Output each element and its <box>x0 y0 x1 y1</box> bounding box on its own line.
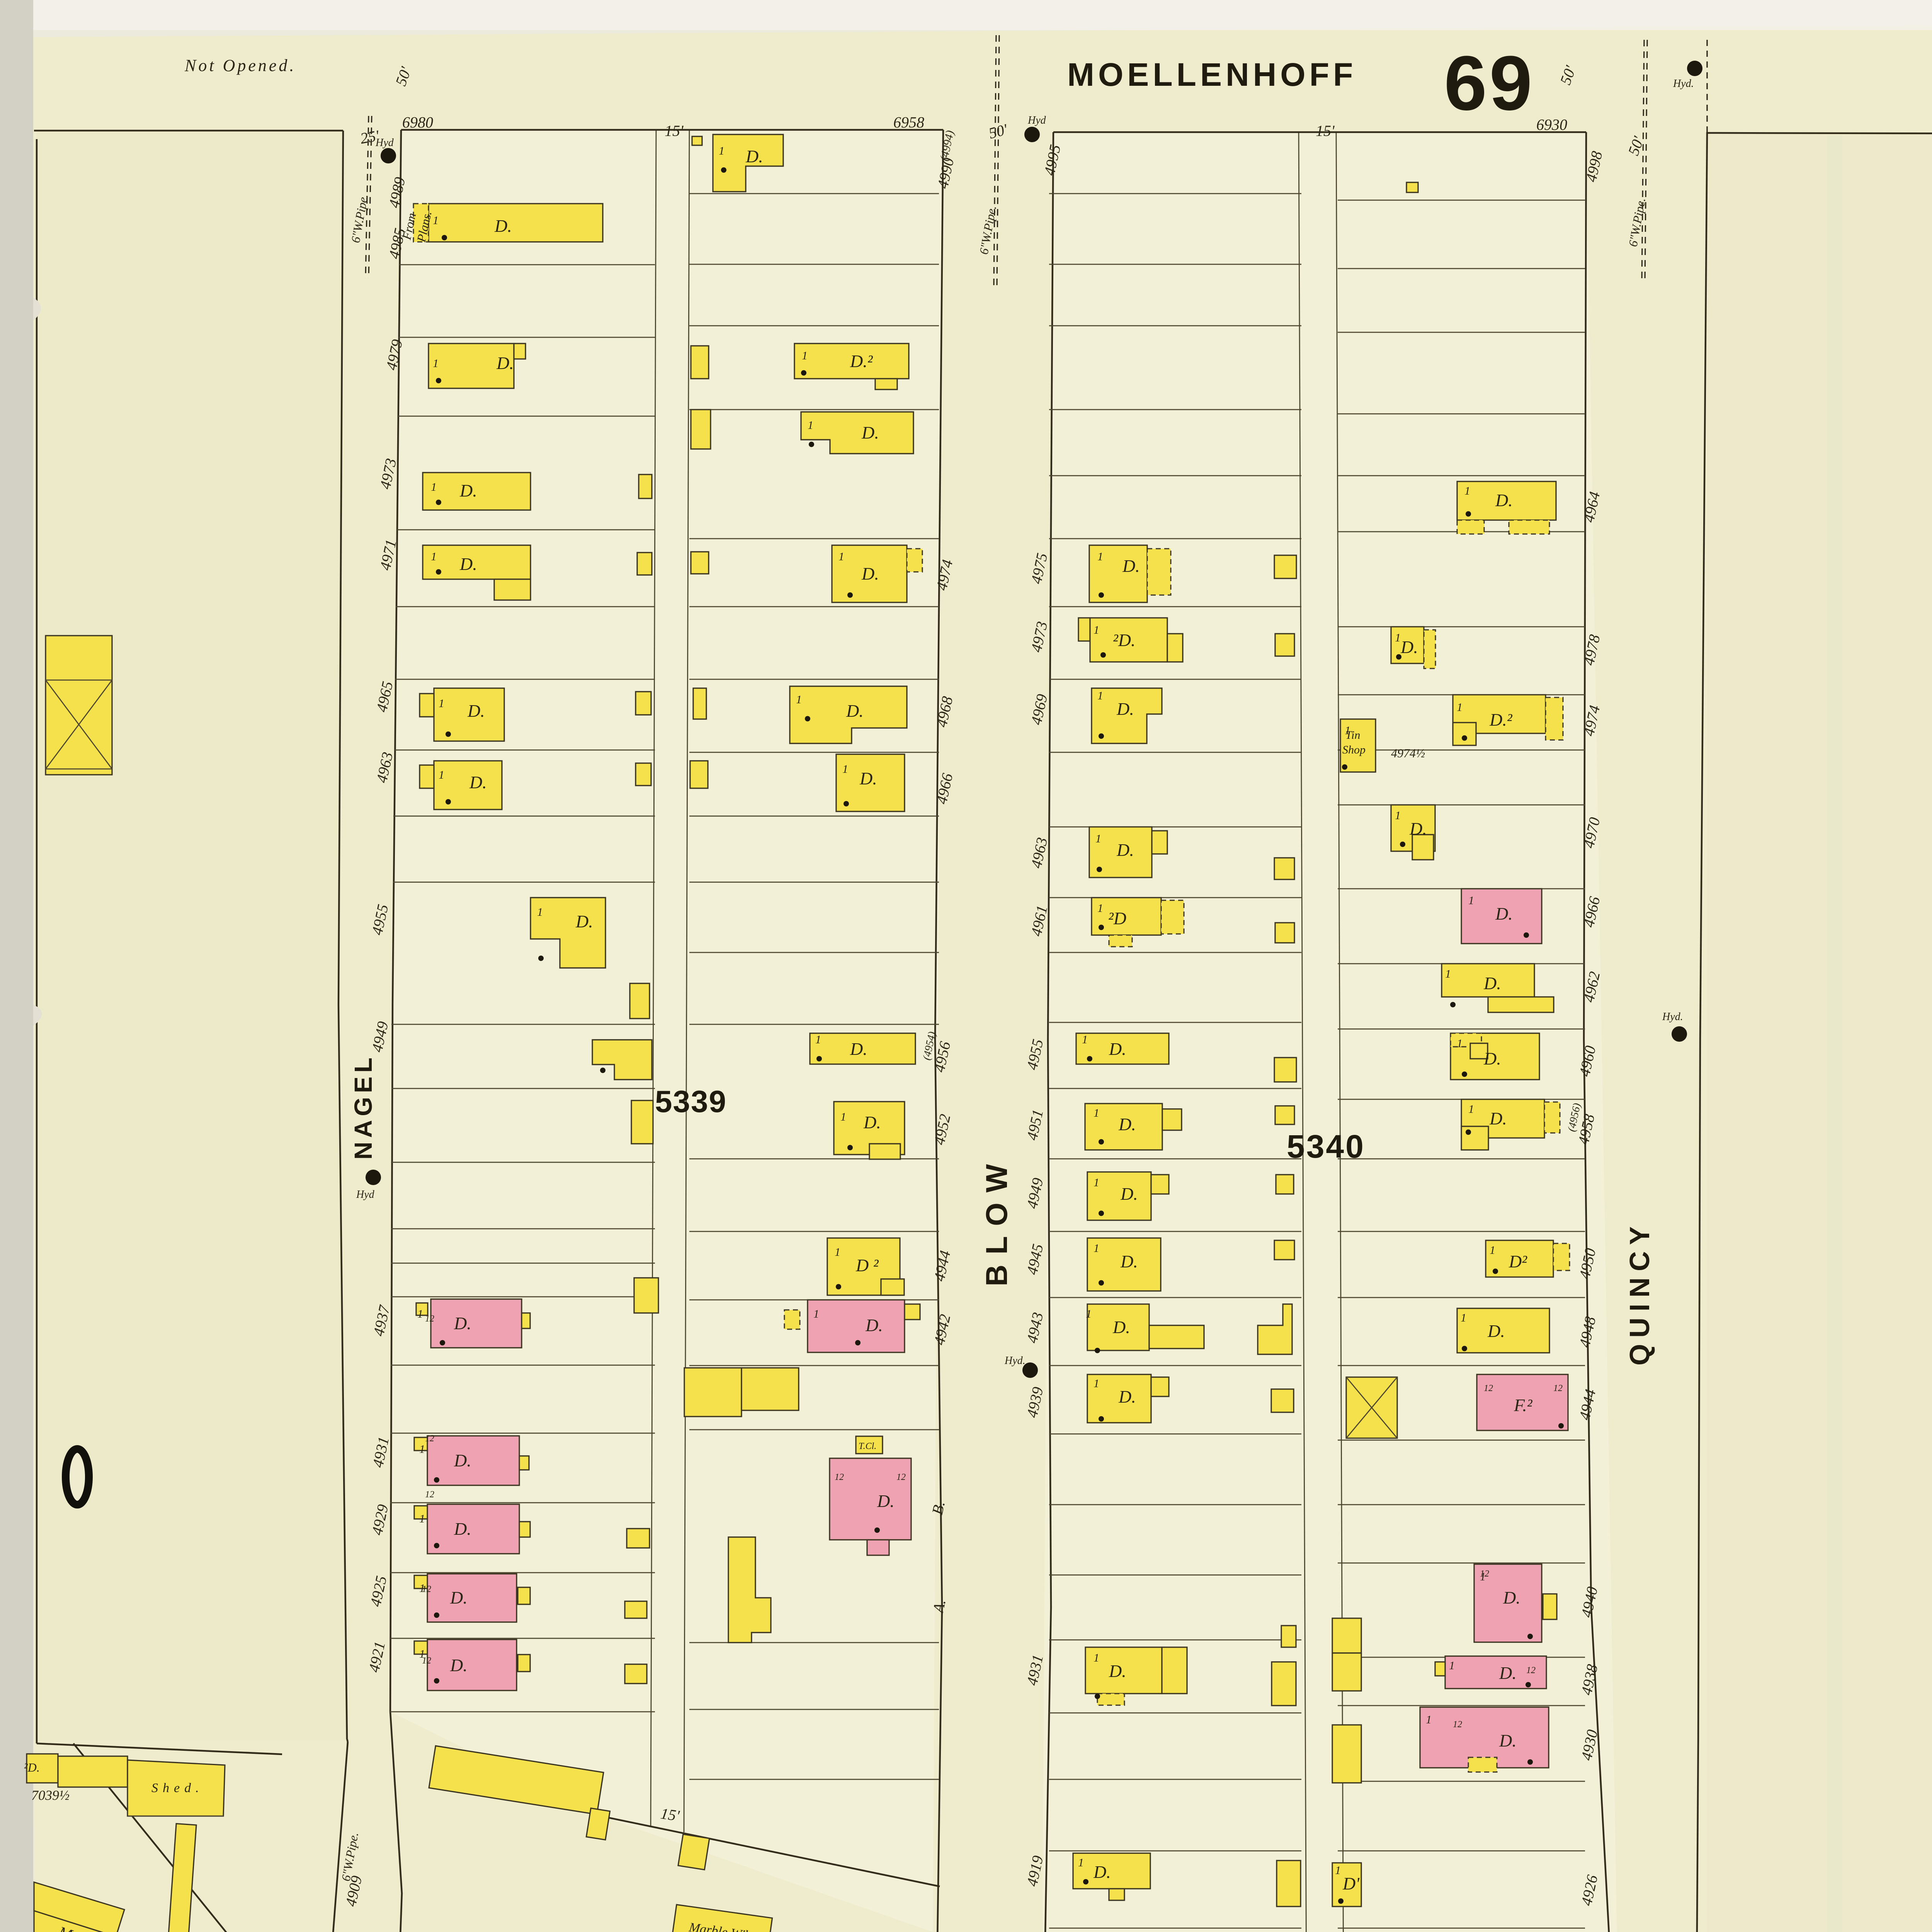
svg-text:1: 1 <box>419 1512 425 1525</box>
svg-text:1: 1 <box>1464 485 1470 497</box>
svg-text:1: 1 <box>537 906 543 918</box>
svg-text:1: 1 <box>1468 894 1474 907</box>
svg-text:D.: D. <box>1116 840 1134 860</box>
svg-text:Hyd: Hyd <box>1027 114 1046 126</box>
svg-text:12: 12 <box>425 1314 434 1324</box>
svg-text:Shop: Shop <box>1342 743 1366 756</box>
svg-text:1: 1 <box>1457 701 1463 714</box>
svg-text:1: 1 <box>1095 832 1101 845</box>
svg-text:1: 1 <box>1449 1659 1455 1672</box>
svg-text:D.: D. <box>494 216 512 236</box>
svg-text:D.: D. <box>1487 1321 1505 1341</box>
svg-text:1: 1 <box>808 419 813 432</box>
svg-text:D.: D. <box>1495 490 1513 510</box>
svg-text:D.: D. <box>469 772 487 792</box>
svg-text:D.: D. <box>1400 637 1418 657</box>
svg-text:D.: D. <box>467 701 485 721</box>
svg-text:6930: 6930 <box>1536 116 1567 133</box>
svg-text:1: 1 <box>419 1582 425 1595</box>
svg-text:69: 69 <box>1444 40 1534 126</box>
svg-text:1: 1 <box>1395 809 1401 822</box>
svg-text:1: 1 <box>1082 1033 1088 1046</box>
svg-text:1: 1 <box>815 1033 821 1046</box>
svg-text:1: 1 <box>1461 1311 1466 1324</box>
svg-text:1: 1 <box>840 1111 846 1123</box>
svg-text:12: 12 <box>1453 1719 1462 1730</box>
svg-text:D': D' <box>1342 1874 1360 1893</box>
svg-text:D.: D. <box>1483 1049 1501 1068</box>
svg-text:1: 1 <box>1086 1308 1092 1320</box>
svg-text:12: 12 <box>1553 1383 1563 1393</box>
svg-text:1: 1 <box>417 1308 423 1320</box>
svg-text:D.: D. <box>850 1039 867 1059</box>
svg-text:12: 12 <box>835 1472 844 1482</box>
svg-text:D.: D. <box>450 1588 468 1607</box>
svg-text:1: 1 <box>802 349 808 362</box>
svg-text:D.: D. <box>454 1451 471 1470</box>
svg-text:1: 1 <box>1094 1651 1099 1664</box>
svg-text:Hyd: Hyd <box>356 1189 375 1201</box>
svg-text:D.: D. <box>1109 1039 1126 1059</box>
svg-text:1: 1 <box>1094 1377 1099 1390</box>
svg-text:D.: D. <box>861 423 879 442</box>
svg-text:Hyd.: Hyd. <box>1673 78 1694 90</box>
svg-text:1: 1 <box>1480 1570 1486 1583</box>
svg-text:D.: D. <box>863 1112 881 1132</box>
svg-text:BLOW: BLOW <box>980 1154 1014 1286</box>
svg-text:D.²: D.² <box>850 351 873 371</box>
svg-text:D.: D. <box>1499 1731 1517 1750</box>
svg-text:5340: 5340 <box>1287 1128 1365 1165</box>
svg-text:D.: D. <box>1409 819 1427 838</box>
svg-text:MOELLENHOFF: MOELLENHOFF <box>1067 56 1357 93</box>
svg-text:D.: D. <box>1495 904 1513 923</box>
svg-text:D.: D. <box>1118 1387 1136 1406</box>
svg-text:D.: D. <box>1109 1661 1126 1681</box>
svg-text:7039½: 7039½ <box>31 1787 70 1803</box>
svg-text:1: 1 <box>813 1308 819 1320</box>
svg-text:1: 1 <box>431 550 437 563</box>
svg-text:1: 1 <box>433 214 439 227</box>
svg-text:²D: ²D <box>1108 908 1126 928</box>
svg-text:1: 1 <box>719 145 724 157</box>
svg-text:1: 1 <box>1097 902 1103 915</box>
svg-text:1: 1 <box>838 550 844 563</box>
svg-text:12: 12 <box>1484 1383 1493 1393</box>
svg-text:1: 1 <box>1094 624 1099 636</box>
svg-text:1: 1 <box>1445 968 1451 980</box>
svg-text:D.: D. <box>1112 1317 1130 1337</box>
svg-text:Shed.: Shed. <box>151 1781 204 1795</box>
svg-text:15': 15' <box>1316 122 1335 139</box>
svg-text:1: 1 <box>1395 631 1401 644</box>
svg-text:1: 1 <box>842 763 848 776</box>
svg-text:1: 1 <box>431 481 437 493</box>
svg-text:4974½: 4974½ <box>1391 746 1425 760</box>
svg-text:²D.: ²D. <box>1113 630 1136 650</box>
svg-text:1: 1 <box>419 1648 425 1660</box>
svg-text:D.: D. <box>745 146 763 166</box>
svg-text:1: 1 <box>1097 550 1103 563</box>
svg-text:D.: D. <box>1120 1184 1138 1204</box>
svg-text:D.: D. <box>1093 1862 1111 1882</box>
svg-text:1: 1 <box>835 1246 840 1259</box>
svg-text:1: 1 <box>1490 1244 1495 1257</box>
svg-text:D.: D. <box>1120 1252 1138 1271</box>
svg-text:1: 1 <box>439 769 444 781</box>
svg-text:12: 12 <box>896 1472 906 1482</box>
svg-text:D.: D. <box>496 353 514 373</box>
svg-text:F.²: F.² <box>1514 1395 1533 1415</box>
svg-text:1: 1 <box>1426 1713 1432 1726</box>
svg-text:D.: D. <box>861 564 879 583</box>
svg-text:D.: D. <box>865 1315 883 1335</box>
svg-text:D.: D. <box>450 1655 468 1675</box>
svg-text:D.: D. <box>1483 973 1501 993</box>
svg-text:D.: D. <box>459 481 477 500</box>
svg-text:Hyd.: Hyd. <box>1662 1011 1683 1023</box>
svg-text:D.: D. <box>1122 556 1140 576</box>
svg-text:D.: D. <box>859 769 877 788</box>
svg-text:1: 1 <box>1078 1856 1084 1869</box>
svg-text:12: 12 <box>425 1434 434 1444</box>
svg-text:1: 1 <box>439 697 444 710</box>
svg-text:1: 1 <box>1335 1864 1341 1877</box>
svg-text:²D.: ²D. <box>24 1760 40 1774</box>
svg-text:D²: D² <box>1509 1252 1527 1271</box>
svg-text:D.: D. <box>1503 1588 1520 1607</box>
svg-text:5339: 5339 <box>655 1084 727 1119</box>
svg-text:1: 1 <box>1345 724 1350 737</box>
svg-text:6958: 6958 <box>893 114 924 131</box>
svg-text:1: 1 <box>1097 689 1103 702</box>
svg-text:1: 1 <box>1457 1037 1463 1050</box>
svg-text:D.: D. <box>1118 1114 1136 1134</box>
svg-text:Hyd: Hyd <box>375 137 394 149</box>
svg-text:1: 1 <box>796 693 802 706</box>
svg-text:12: 12 <box>425 1490 434 1500</box>
svg-text:D.: D. <box>454 1313 471 1333</box>
svg-text:Hyd.: Hyd. <box>1004 1355 1026 1367</box>
svg-text:Not Opened.: Not Opened. <box>184 56 296 75</box>
svg-text:D.: D. <box>459 554 477 574</box>
svg-text:QUINCY: QUINCY <box>1624 1220 1655 1366</box>
svg-text:NAGEL: NAGEL <box>349 1054 377 1160</box>
svg-text:D ²: D ² <box>855 1255 879 1275</box>
svg-text:D.: D. <box>1499 1663 1517 1683</box>
svg-text:1: 1 <box>419 1443 425 1456</box>
svg-text:D.: D. <box>877 1491 895 1511</box>
svg-text:D.: D. <box>575 912 593 931</box>
svg-text:D.²: D.² <box>1489 710 1513 730</box>
svg-text:1: 1 <box>1468 1103 1474 1116</box>
svg-text:12: 12 <box>1526 1665 1536 1675</box>
svg-text:D.: D. <box>1489 1109 1507 1128</box>
svg-text:D.: D. <box>454 1519 471 1539</box>
svg-text:15': 15' <box>660 1804 681 1825</box>
svg-text:D.: D. <box>1116 699 1134 719</box>
svg-text:15': 15' <box>665 122 684 139</box>
svg-text:6980: 6980 <box>402 114 433 131</box>
svg-text:1: 1 <box>1094 1107 1099 1119</box>
svg-text:D.: D. <box>846 701 864 721</box>
svg-text:1: 1 <box>1094 1176 1099 1189</box>
svg-text:1: 1 <box>1094 1242 1099 1255</box>
svg-text:T.Cl.: T.Cl. <box>859 1441 876 1451</box>
svg-text:1: 1 <box>433 357 439 370</box>
